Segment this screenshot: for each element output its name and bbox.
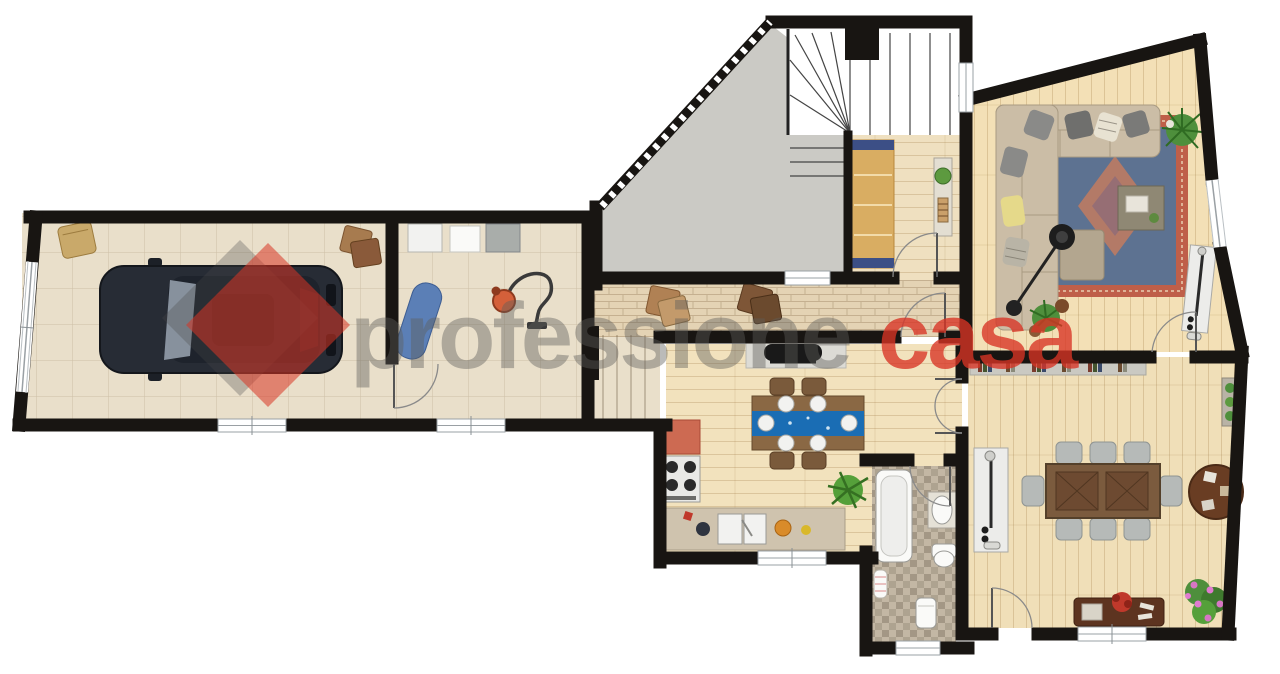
stove-icon (662, 456, 700, 502)
washbasin-icon (928, 492, 956, 528)
washing-machine-icon (408, 224, 442, 252)
watermark-text-accent: casa (878, 283, 1079, 388)
lemon-icon (801, 525, 811, 535)
bathtub-icon (876, 470, 912, 562)
storage-bag-icon (57, 221, 97, 259)
window-icon (896, 641, 940, 655)
pot-icon (696, 522, 710, 536)
console-table-icon (934, 158, 952, 236)
entry-opening (959, 63, 973, 112)
bowl-icon (775, 520, 791, 536)
chair-icon (770, 452, 794, 469)
coffee-table-icon (1118, 186, 1164, 230)
toilet-icon (916, 598, 936, 628)
pillow (1000, 195, 1026, 228)
watermark-text-primary: professione (350, 283, 851, 388)
wardrobe-icon (852, 140, 894, 268)
sink-icon (718, 514, 742, 544)
towel-icon (874, 570, 887, 598)
floor-plan-canvas: professione casa (0, 0, 1280, 674)
window-icon (1078, 624, 1146, 644)
kitchen-counter-icon (660, 508, 845, 550)
window-icon (218, 416, 286, 435)
pillow (1064, 110, 1095, 141)
chair-icon (802, 452, 826, 469)
floor-plan: professione casa (0, 0, 1280, 674)
window-icon (437, 416, 505, 435)
laundry-basket-icon (486, 224, 520, 252)
window-icon (758, 548, 826, 568)
bidet-icon (932, 544, 956, 567)
stair-pillar (845, 26, 879, 60)
dryer-icon (450, 226, 480, 252)
radiator-icon (974, 448, 1008, 552)
